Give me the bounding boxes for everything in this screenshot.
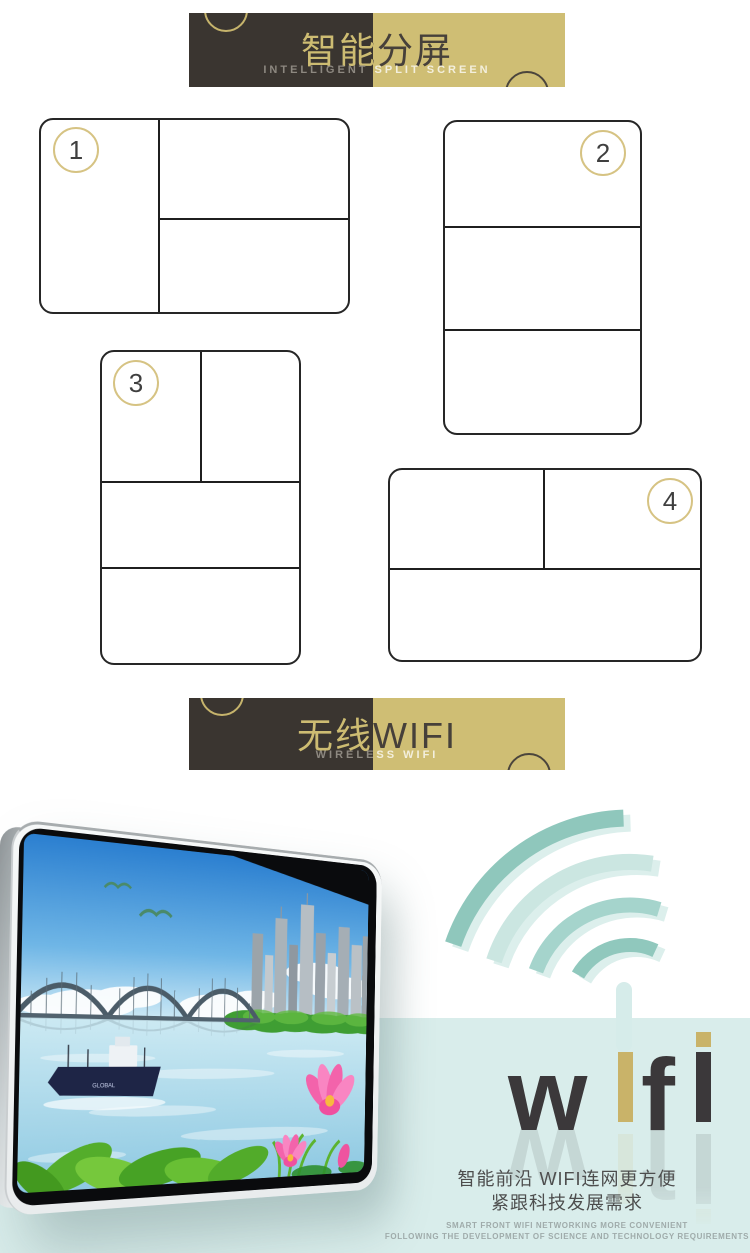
banner-subtitle: WIRELESS WIFI [189, 749, 373, 761]
layout-number: 3 [129, 368, 143, 399]
divider-line [445, 226, 640, 228]
wireless-wifi-banner: 无线WIFI WIRELESS WIFI 无线WIFI WIRELESS WIF… [189, 698, 565, 770]
divider-line [102, 567, 299, 569]
banner-subtitle: WIRELESS WIFI [373, 749, 565, 761]
layout-number-badge: 1 [53, 127, 99, 173]
divider-line [390, 568, 700, 570]
wifi-letter-i-dark [696, 1052, 711, 1122]
banner-right-half: 无线WIFI WIRELESS WIFI [373, 698, 565, 770]
divider-line [158, 120, 160, 312]
banner-subtitle: INTELLIGENT SPLIT SCREEN [189, 64, 373, 76]
layout-number: 1 [69, 135, 83, 166]
layout-number-badge: 4 [647, 478, 693, 524]
divider-line [445, 329, 640, 331]
layout-number: 4 [663, 486, 677, 517]
layout-diagram-4: 4 [388, 468, 702, 662]
wifi-letter-i-dot [696, 1032, 711, 1047]
tagline-small2: FOLLOWING THE DEVELOPMENT OF SCIENCE AND… [383, 1231, 750, 1242]
split-screen-banner: 智能分屏 INTELLIGENT SPLIT SCREEN 智能分屏 INTEL… [189, 13, 565, 87]
banner-subtitle: INTELLIGENT SPLIT SCREEN [373, 64, 565, 76]
screen-scene-image: GLOBAL [17, 833, 369, 1194]
layout-diagram-1: 1 [39, 118, 350, 314]
layout-number: 2 [596, 138, 610, 169]
wifi-logo: w f [500, 1020, 730, 1130]
layout-number-badge: 2 [580, 130, 626, 176]
divider-line [543, 470, 545, 570]
tagline-line1: 智能前沿 WIFI连网更方便 [383, 1167, 750, 1191]
banner-left-half: 无线WIFI WIRELESS WIFI [189, 698, 373, 770]
divider-line [158, 218, 348, 220]
layout-diagram-3: 3 [100, 350, 301, 665]
display-monitor: GLOBAL [4, 818, 382, 1216]
wifi-letter-i-gold [618, 1052, 633, 1122]
banner-right-half: 智能分屏 INTELLIGENT SPLIT SCREEN [373, 13, 565, 87]
banner-left-half: 智能分屏 INTELLIGENT SPLIT SCREEN [189, 13, 373, 87]
divider-line [102, 481, 299, 483]
tagline-small1: SMART FRONT WIFI NETWORKING MORE CONVENI… [383, 1220, 750, 1231]
tagline-block: 智能前沿 WIFI连网更方便 紧跟科技发展需求 SMART FRONT WIFI… [383, 1167, 750, 1242]
divider-line [200, 352, 202, 483]
ship-label: GLOBAL [92, 1082, 115, 1089]
tagline-line2: 紧跟科技发展需求 [383, 1191, 750, 1215]
layout-diagram-2: 2 [443, 120, 642, 435]
layout-number-badge: 3 [113, 360, 159, 406]
